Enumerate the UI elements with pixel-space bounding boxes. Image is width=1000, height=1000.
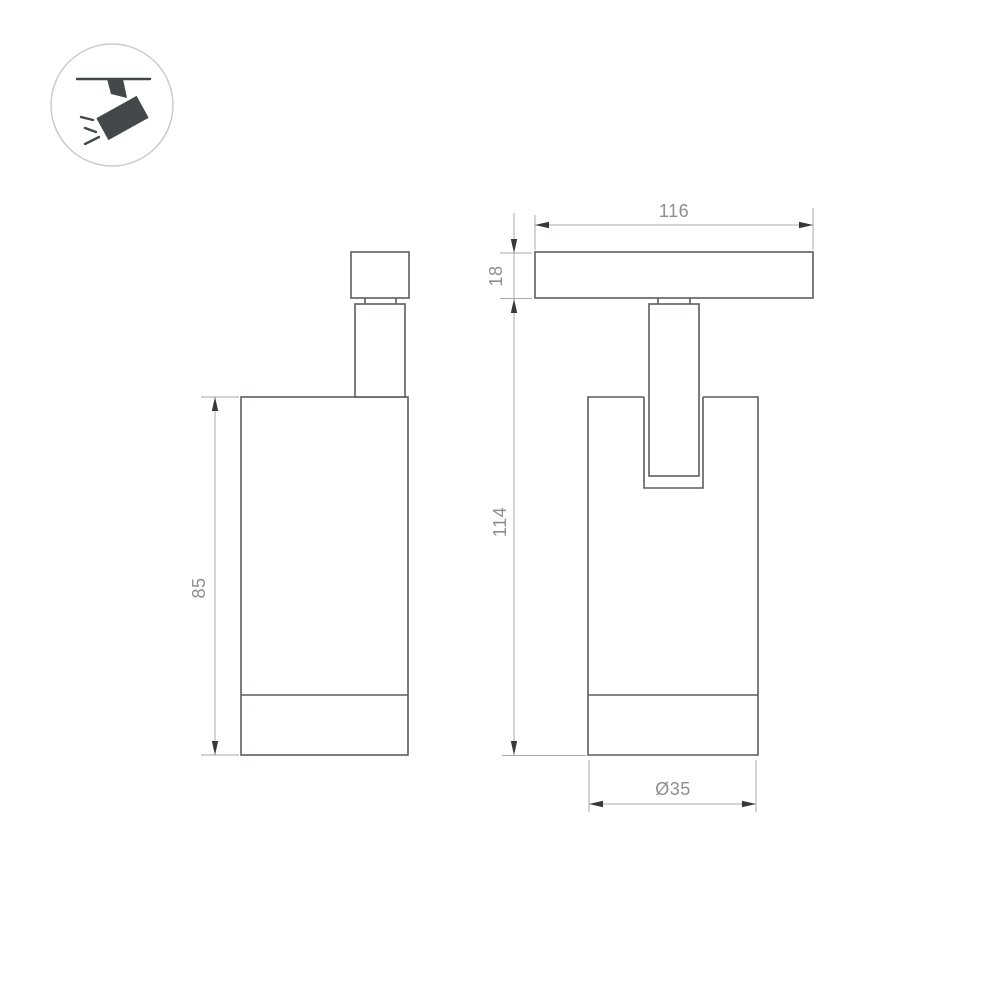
arrowhead-up (511, 299, 517, 313)
arrowhead-up (212, 397, 218, 411)
arrowhead-right (799, 222, 813, 228)
dimension-label-114: 114 (490, 507, 510, 537)
front-view-track-adapter (535, 252, 813, 298)
dimension-label-116: 116 (659, 201, 689, 221)
front-view-arm (649, 304, 699, 476)
icon-circle (51, 44, 173, 166)
arrowhead-left (535, 222, 549, 228)
dimension-85: 85 (189, 397, 239, 755)
dimension-d35: Ø35 (589, 760, 756, 812)
side-view-track-adapter (351, 252, 409, 298)
arrowhead-down (511, 741, 517, 755)
track-spotlight-icon (51, 44, 173, 166)
front-view (535, 252, 813, 755)
dimension-18: 18 (486, 213, 532, 755)
arrowhead-down (212, 741, 218, 755)
arrowhead-down (511, 239, 517, 253)
side-view (241, 252, 409, 755)
dimension-label-d35: Ø35 (655, 779, 691, 799)
dimension-label-85: 85 (189, 577, 209, 598)
drawing-canvas: 85 116 18 114 (0, 0, 1000, 1000)
dimension-114: 114 (490, 507, 586, 756)
dimension-116: 116 (535, 201, 813, 250)
arrowhead-left (589, 801, 603, 807)
arrowhead-right (742, 801, 756, 807)
side-view-body (241, 397, 408, 755)
side-view-arm (355, 304, 405, 397)
dimension-label-18: 18 (486, 265, 506, 286)
dimension-drawing: 85 116 18 114 (0, 0, 1000, 1000)
